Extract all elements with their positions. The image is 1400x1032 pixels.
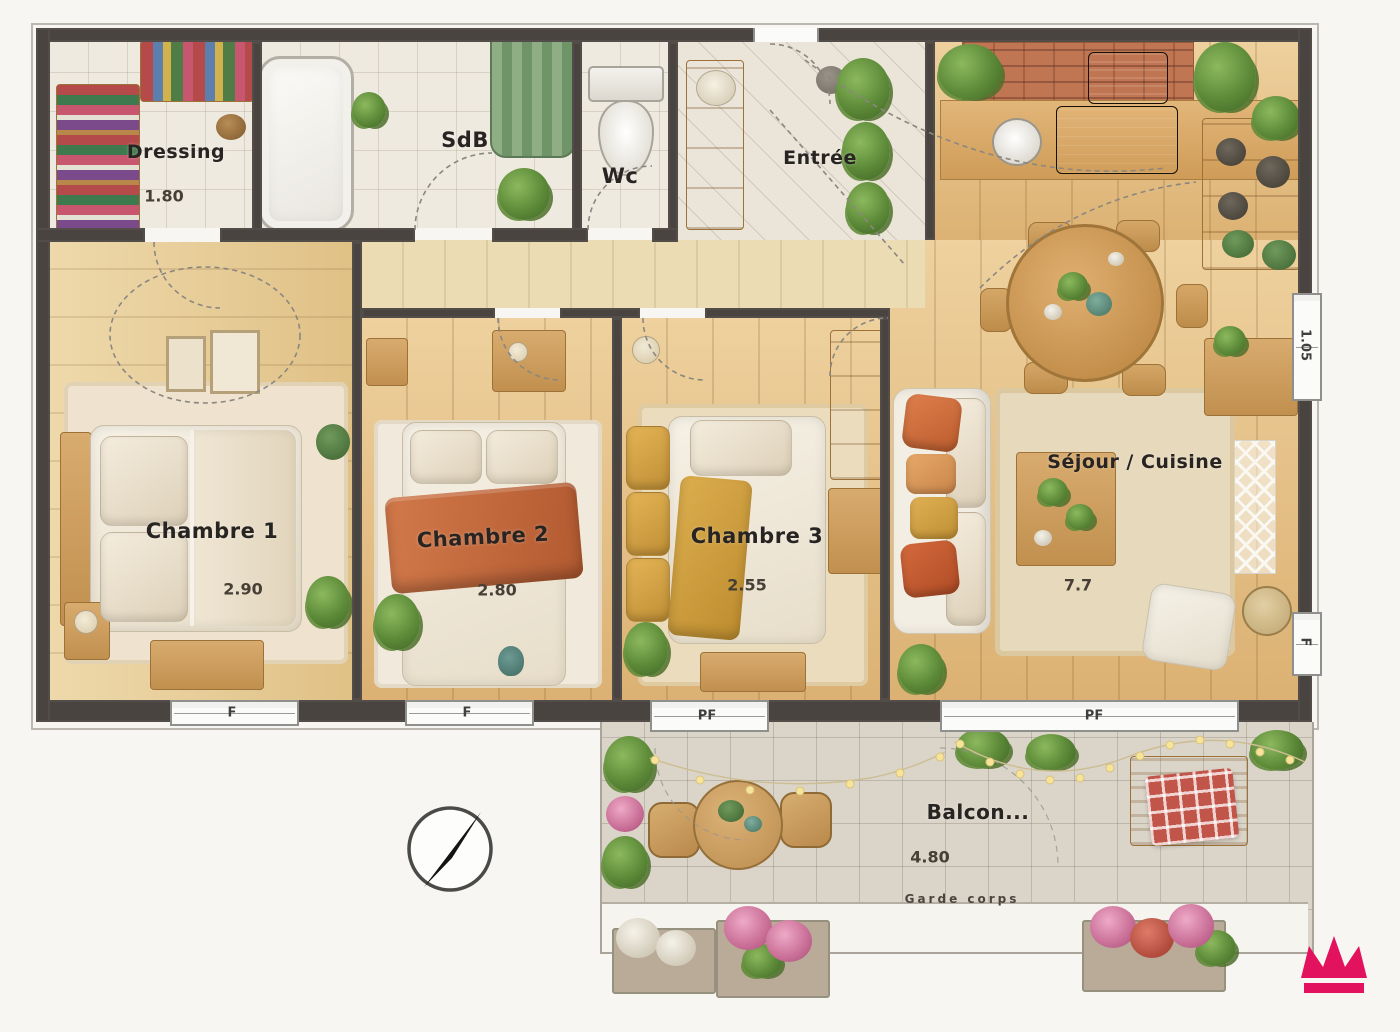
wall-entree-cuisine [925,42,935,240]
flowers-pink [724,906,772,950]
trellis-panel [1234,440,1276,574]
ch2-pillow [410,430,482,484]
shower-curtain [490,40,576,158]
ch3-yellow-pillow [626,492,670,556]
kitchen-shelf-greens [1252,96,1300,140]
wall-plate [1218,192,1248,220]
wall-h2-a [362,308,495,318]
basket [1242,586,1292,636]
ch3-wardrobe [830,330,886,480]
ch2-teal-jug [498,646,524,676]
bistro-table [693,780,783,870]
dining-table [1006,224,1164,382]
throw-pillow-red [899,539,960,599]
room-label-wc: Wc [602,164,639,188]
ch1-dresser [150,640,264,690]
wall-wc-entree [668,42,678,232]
ch3-plant [624,622,668,676]
wall-h1-c [492,228,588,242]
wall-ch2-ch3 [612,318,622,700]
dining-plate [1044,304,1062,320]
kitchen-hanging-plant-right [1194,42,1256,112]
room-label-sdb: SdB [441,128,489,152]
sideboard-plant [1214,326,1246,356]
ch2-lamp [508,342,528,362]
window-tag-pf2: PF [1085,709,1103,724]
dressing-hanging-clothes [140,40,254,102]
ch3-mustard-throw [667,475,753,641]
dining-chair [1176,284,1208,328]
ch3-yellow-pillow [626,426,670,490]
wall-h1-d [652,228,678,242]
ch2-dresser [492,330,566,392]
wall-left [36,28,50,722]
window-tag-side: F [1298,638,1313,647]
compass-needle [424,812,481,887]
coffee-table-cup [1034,530,1052,546]
toilet-tank [588,66,664,102]
kitchen-grill-window [1088,52,1168,104]
ch3-desk [828,488,886,574]
railing-greens [1026,734,1076,770]
entree-plant-tall [846,182,890,234]
throw-pillow-yellow [910,497,958,539]
room-dim-chambre2: 2.80 [477,581,516,600]
floor-corridor [362,240,925,308]
room-label-entree: Entrée [783,147,857,169]
floor-plan-page: { "plan": { "type": "apartment-floor-pla… [0,0,1400,1032]
entrance-door [753,28,819,42]
guardrail-note: Garde corps [905,892,1020,906]
wall-h1-a [36,228,145,242]
ch2-pillow [486,430,558,484]
kitchen-cooktop [1056,106,1178,174]
sejour-plant [898,644,944,694]
flowers-pink [766,920,812,962]
ch3-pillow [690,420,792,476]
flowers-pink [1168,904,1214,948]
wall-plate [1216,138,1246,166]
dining-teal-bowl [1086,292,1112,316]
ch3-bench [700,652,806,692]
bistro-chair-right [780,792,832,848]
railing-greens [1250,730,1304,770]
room-label-balcon: Balcon... [927,800,1030,824]
compass-icon [409,808,491,890]
dining-centerpiece [1058,272,1088,300]
flowers-pink [1090,906,1136,948]
room-dim-chambre3: 2.55 [727,576,766,595]
flowers-white [616,918,660,958]
throw-pillow-peach [906,454,956,494]
wall-h2-b [560,308,640,318]
kitchen-sink [992,118,1042,166]
table-plant [718,800,744,822]
ch3-lamp [632,336,660,364]
balcony-green-left [602,836,648,888]
window-tag-f2: F [463,706,472,721]
wall-ch3-sejour [880,318,890,700]
room-dim-sejour: 7.7 [1064,576,1092,595]
kitchen-hanging-plant-left [938,44,1002,100]
window-dim-side: 1.05 [1298,329,1313,361]
ch1-headboard [60,432,92,626]
ch2-nightstand [366,338,408,386]
balcony-green-left [604,736,654,792]
ch1-green-pouf [316,424,350,460]
ch3-yellow-pillow [626,558,670,622]
window-tag-pf1: PF [698,709,716,724]
railing-greens [956,728,1010,768]
ch1-plant [306,576,350,628]
plaid-blanket [1145,768,1240,847]
wall-dressing-sdb [252,42,262,232]
coffee-table-plant [1066,504,1094,530]
ch1-wall-frame [210,330,260,394]
bathtub [258,56,354,232]
ch1-wall-frame [166,336,206,392]
ch2-plant [374,594,420,650]
armchair [1140,582,1237,672]
ch1-lamp [74,610,98,634]
wall-ch1-right [352,242,362,700]
ch1-pillow [100,436,188,526]
flowers-white [656,930,696,966]
throw-pillow-orange [901,393,963,453]
wall-plate [1256,156,1290,188]
sdb-plant [498,168,550,220]
coffee-table-plant [1038,478,1068,506]
room-dim-balcon: 4.80 [910,848,949,867]
wall-sdb-wc [572,42,582,232]
bistro-chair-left [648,802,700,858]
wall-h1-b [220,228,415,242]
table-dish [744,816,762,832]
green-bowl [1262,240,1296,270]
room-label-dressing: Dressing [127,141,225,163]
room-label-chambre3: Chambre 3 [691,524,823,548]
ch1-pillow [100,532,188,622]
room-label-sejour: Séjour / Cuisine [1047,451,1222,473]
entree-hat [696,70,736,106]
room-dim-chambre1: 2.90 [223,580,262,599]
wall-h2-c [705,308,890,318]
dining-plate [1108,252,1124,266]
wall-top [36,28,1312,42]
room-dim-dressing: 1.80 [144,187,183,206]
balcony-flower-left [606,796,644,832]
sdb-plant-small [352,92,386,128]
room-label-chambre1: Chambre 1 [146,519,278,543]
window-tag-f1: F [228,706,237,721]
green-bowl [1222,230,1254,258]
entree-plant-tall [836,58,890,120]
dressing-basket [216,114,246,140]
